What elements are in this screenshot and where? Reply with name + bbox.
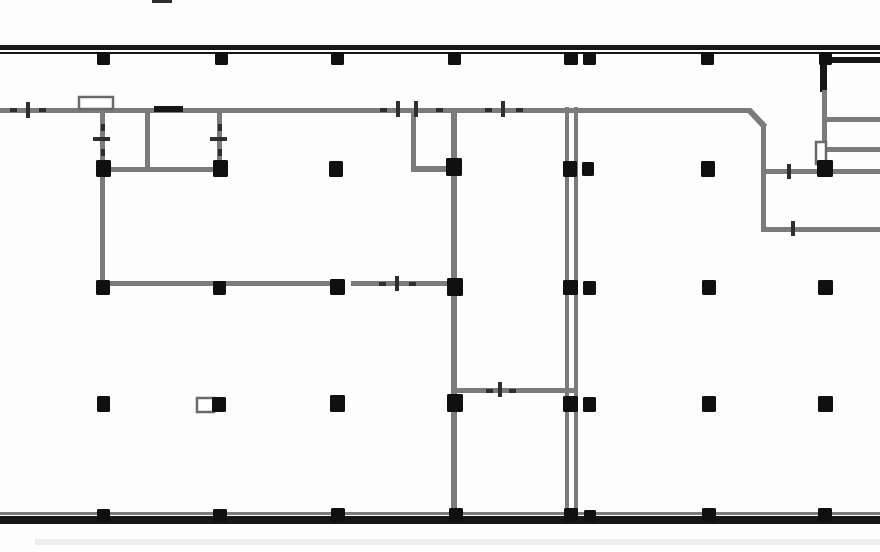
tick-dash — [485, 108, 492, 112]
tick-dash — [10, 108, 17, 112]
column — [701, 161, 715, 177]
column — [331, 508, 345, 522]
top-exterior-wall-outer — [0, 45, 880, 50]
column — [583, 52, 596, 65]
tick-dash — [379, 282, 386, 286]
tick-dash — [380, 108, 387, 112]
column — [446, 158, 462, 176]
tick-wide — [210, 137, 227, 141]
column — [329, 161, 343, 177]
equipment-box — [197, 398, 214, 412]
column — [96, 280, 110, 295]
right-room-horizontal-2 — [823, 147, 880, 152]
tick-dash — [436, 108, 443, 112]
tick-dash — [486, 389, 493, 393]
column — [819, 52, 832, 65]
bottom-wall-top-line — [0, 512, 880, 515]
column — [817, 160, 833, 177]
column — [818, 396, 833, 412]
tick-tall — [26, 102, 30, 118]
room-b-left-wall — [411, 111, 416, 169]
tick-tall — [787, 164, 791, 179]
floor-plan-canvas — [0, 0, 880, 552]
tick-dash — [509, 389, 516, 393]
below-wall-ghost-line — [35, 539, 880, 545]
column — [583, 281, 596, 295]
tick-dot — [101, 124, 105, 131]
column — [96, 160, 111, 177]
column — [702, 280, 716, 295]
tick-tall — [396, 101, 400, 117]
top-exterior-wall-inner — [0, 52, 880, 54]
top-edge-dash — [152, 0, 172, 3]
right-wing-vertical-wall — [761, 125, 766, 232]
tick-dot — [218, 149, 222, 156]
tick-dot — [218, 124, 222, 131]
mid-level-horizontal-wall — [100, 281, 453, 286]
column — [702, 508, 716, 522]
column — [818, 280, 833, 295]
column — [97, 396, 110, 412]
column — [564, 52, 578, 65]
column — [97, 52, 110, 65]
column — [212, 397, 226, 412]
tick-dash — [409, 282, 416, 286]
tick-tall — [414, 101, 418, 117]
column — [563, 161, 577, 177]
floor-plan — [0, 0, 880, 552]
column — [563, 396, 578, 412]
column — [818, 508, 832, 522]
right-wing-bottom-wall — [761, 227, 880, 232]
column — [584, 510, 596, 522]
column — [97, 509, 110, 522]
right-room-horizontal-3 — [827, 117, 880, 122]
tick-tall — [395, 276, 399, 291]
tick-dot — [101, 149, 105, 156]
column — [331, 52, 344, 65]
column — [215, 52, 228, 65]
bottom-exterior-wall — [0, 516, 880, 524]
room-a-bottom-wall — [100, 167, 223, 172]
right-room-divider-black — [831, 57, 880, 63]
room-a-door-lintel — [154, 106, 183, 112]
tick-wide — [93, 137, 110, 141]
door-recess-box — [79, 97, 113, 109]
tick-dash — [39, 108, 46, 112]
column — [330, 279, 345, 295]
column — [583, 397, 596, 412]
column — [701, 52, 714, 65]
column — [563, 280, 578, 295]
plan-background — [0, 0, 880, 552]
column — [582, 162, 594, 176]
tick-tall — [791, 221, 795, 236]
column — [213, 509, 227, 522]
column — [213, 281, 226, 295]
column — [702, 396, 716, 412]
tick-tall — [501, 101, 505, 117]
tick-dash — [516, 108, 523, 112]
room-a-left-wall — [100, 111, 105, 283]
room-a-middle-wall — [145, 111, 150, 171]
column — [330, 395, 345, 412]
column — [449, 508, 463, 522]
tick-tall — [498, 382, 502, 397]
column — [213, 160, 228, 177]
column — [564, 508, 578, 522]
column — [448, 52, 461, 65]
column — [447, 394, 463, 412]
column — [447, 278, 463, 296]
